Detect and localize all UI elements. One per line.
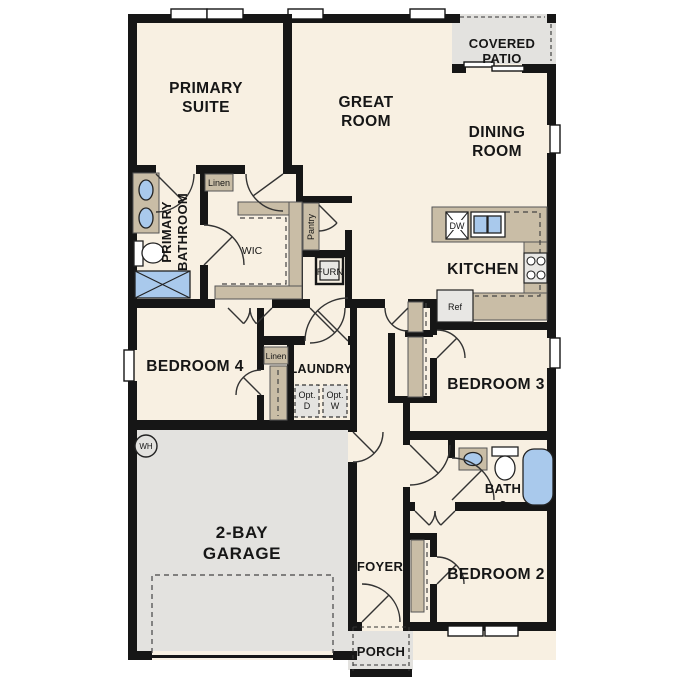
label-kitchen: KITCHEN (447, 261, 519, 278)
kitchen-counter-bottom (473, 293, 547, 320)
wall-garage-bottom-left (128, 651, 152, 660)
label-bath2-line1: BATH (485, 481, 521, 496)
porch-front-step (350, 669, 412, 677)
label-opt-dryer-line1: Opt. (298, 390, 315, 400)
wall-bedroom3-bottom (403, 431, 556, 440)
label-primary-suite-line1: PRIMARY (169, 80, 243, 97)
wall-furn-right (345, 230, 352, 308)
wall-foyer-right-c (403, 511, 410, 622)
wall-hall-closet-left (388, 333, 395, 403)
bedroom3-closet-shelf (408, 337, 423, 397)
label-dining-room-line1: DINING (469, 124, 526, 141)
vanity-sink-icon (139, 180, 153, 200)
window-bedroom2-2 (485, 626, 518, 636)
label-covered-patio-line2: PATIO (482, 51, 521, 66)
patio-slider-panel (492, 66, 524, 71)
wall-main-horiz-a (128, 299, 215, 308)
label-porch: PORCH (357, 644, 405, 659)
label-pantry: Pantry (306, 213, 316, 240)
floor-plan-page: PRIMARY SUITE GREAT ROOM COVERED PATIO D… (0, 0, 687, 687)
label-bedroom4: BEDROOM 4 (146, 358, 243, 375)
wall-bed2-closet-right-b (430, 584, 437, 622)
label-dishwasher: DW (450, 221, 465, 231)
label-bedroom3: BEDROOM 3 (447, 376, 544, 393)
wall-bath2-bottom-a (403, 502, 415, 511)
coat-closet-shelf (408, 302, 423, 332)
window-great-room-left (288, 9, 323, 19)
label-linen-primary: Linen (208, 178, 230, 188)
label-water-heater: WH (139, 442, 153, 451)
range-stove-icon (524, 253, 547, 283)
wall-suite-bottom-c (283, 165, 303, 174)
label-primary-suite-line2: SUITE (182, 99, 230, 116)
label-primary-bathroom-line1: PRIMARY (159, 201, 174, 263)
label-wic: WIC (242, 245, 263, 257)
wall-laundry-top-a (264, 336, 305, 345)
vanity-sink-icon (139, 208, 153, 228)
wall-suite-greatroom (283, 14, 292, 174)
label-bedroom2: BEDROOM 2 (447, 566, 544, 583)
label-furnace: FURN (317, 267, 344, 278)
label-garage-line1: 2-BAY (216, 523, 269, 542)
window-primary-suite-1 (171, 9, 207, 19)
wall-garage-right-b (348, 462, 357, 622)
window-great-room-right (410, 9, 445, 19)
bathtub-icon (523, 449, 553, 505)
floor-plan: PRIMARY SUITE GREAT ROOM COVERED PATIO D… (0, 0, 687, 687)
wall-main-horiz-b (272, 299, 310, 308)
wall-pantry-top (296, 196, 352, 203)
bath2-toilet-tank-icon (492, 447, 518, 456)
label-covered-patio-line1: COVERED (469, 36, 535, 51)
wall-patio-post (547, 14, 556, 23)
label-primary-bathroom-line2: BATHROOM (175, 193, 190, 271)
label-garage-line2: GARAGE (203, 544, 281, 563)
wall-garage-right-a (348, 425, 357, 432)
label-great-room-line2: ROOM (341, 113, 391, 130)
wall-right-upper (547, 64, 556, 125)
wall-kitchen-bottom (430, 322, 556, 330)
label-great-room-line1: GREAT (338, 94, 393, 111)
bedroom2-closet-shelf (411, 540, 424, 612)
label-opt-washer-line1: Opt. (326, 390, 343, 400)
window-dining (550, 125, 560, 153)
label-opt-washer-line2: W (331, 401, 340, 411)
wall-bath-wic-b (200, 265, 208, 299)
label-opt-dryer-line2: D (304, 401, 311, 411)
label-dining-room-line2: ROOM (472, 143, 522, 160)
label-linen-hall: Linen (266, 351, 287, 361)
label-bath2-line2: 2 (499, 498, 507, 513)
window-primary-suite-2 (207, 9, 243, 19)
window-bedroom2-1 (448, 626, 483, 636)
label-refrigerator: Ref (448, 302, 463, 312)
garage-door-sill (152, 655, 333, 658)
wic-shelf-bottom (215, 286, 302, 299)
label-foyer: FOYER (357, 559, 404, 574)
wall-main-horiz-c (345, 299, 385, 308)
wall-bed2-closet-right-a (430, 535, 437, 557)
wall-right-mid (547, 153, 556, 338)
wall-closet-right-a (430, 299, 437, 322)
wall-suite-bottom-b (196, 165, 245, 174)
shower-icon (135, 271, 190, 298)
window-bedroom3 (550, 338, 560, 368)
wic-shelf-right (289, 202, 302, 299)
kitchen-sink-icon (471, 212, 505, 237)
wall-garage-top (128, 420, 357, 430)
bath2-toilet-bowl-icon (495, 456, 515, 480)
window-bedroom4 (124, 350, 134, 381)
label-laundry: LAUNDRY (290, 362, 353, 376)
